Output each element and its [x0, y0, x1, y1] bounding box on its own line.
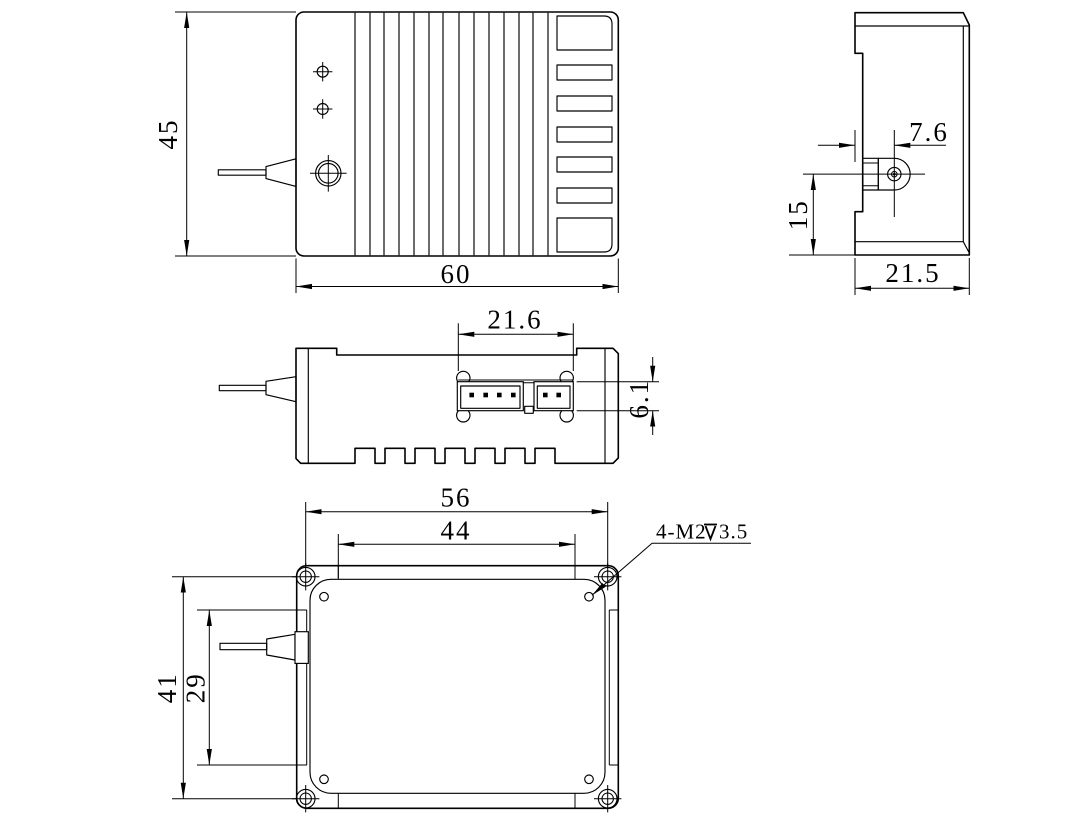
connector-4pin [457, 382, 523, 411]
dim-label-21-5: 21.5 [885, 258, 940, 288]
m2-tapped-holes [320, 592, 594, 783]
dim-side-fiber-offset: 7.6 [818, 117, 949, 162]
front-fiber-pigtail [218, 159, 296, 187]
dim-label-21-6: 21.6 [487, 305, 542, 335]
dim-side-fiber-height: 15 [783, 174, 855, 255]
fiber-strain-relief-block [295, 632, 308, 664]
callout-depth-label: 3.5 [719, 520, 748, 544]
connector-assembly [457, 371, 574, 422]
dim-label-29: 29 [181, 672, 211, 703]
engineering-drawing-canvas: 45 60 7.6 15 [0, 0, 1067, 814]
dim-label-7-6: 7.6 [909, 117, 949, 147]
thread-callout: 4-M2 3.5 [592, 520, 751, 596]
callout-thread-label: 4-M2 [656, 520, 707, 544]
dim-bottom-hole-span-x: 44 [338, 515, 575, 578]
edge-slot-ticks [297, 566, 619, 809]
dim-label-41: 41 [152, 672, 182, 703]
front-fiber-port-boss [310, 155, 347, 192]
cover-outline [310, 579, 605, 793]
corner-screw-top-right [594, 563, 621, 590]
dim-label-56: 56 [441, 483, 472, 513]
connector-2pin [534, 382, 573, 411]
dim-bottom-hole-span-y: 29 [181, 610, 307, 765]
dim-label-45: 45 [153, 119, 183, 150]
front-fiducial-hole-bottom [313, 99, 332, 118]
top-view: 21.6 6.1 [219, 305, 659, 464]
corner-screws [292, 563, 621, 812]
callout-leader-line [592, 543, 652, 595]
dim-side-depth: 21.5 [855, 258, 969, 295]
dim-connector-span: 21.6 [458, 305, 573, 372]
dim-label-6-1: 6.1 [624, 379, 654, 419]
edge-step-lines [307, 610, 610, 765]
connector-link-tab [525, 406, 534, 413]
ferrule-centerlines [803, 130, 925, 217]
top-fiber-pigtail [219, 377, 296, 402]
front-body-outline [296, 12, 618, 256]
dim-front-height: 45 [153, 12, 296, 256]
front-fiducial-hole-top [313, 62, 332, 81]
dim-label-15: 15 [783, 199, 813, 230]
side-view: 7.6 15 21.5 [783, 13, 969, 295]
dim-label-44: 44 [441, 515, 472, 545]
heatsink-side-slots [557, 16, 612, 252]
dim-front-width: 60 [296, 259, 618, 294]
dim-label-60: 60 [441, 259, 472, 289]
base-plate-outline [297, 566, 619, 809]
module-dimension-drawing: 45 60 7.6 15 [0, 0, 1067, 814]
bottom-view: 56 44 41 29 4-M2 3.5 [152, 483, 751, 813]
bottom-fiber-pigtail [220, 632, 308, 664]
side-fiber-ferrule [803, 130, 925, 217]
heatsink-fin-lines [355, 13, 548, 255]
front-view: 45 60 [153, 12, 618, 293]
